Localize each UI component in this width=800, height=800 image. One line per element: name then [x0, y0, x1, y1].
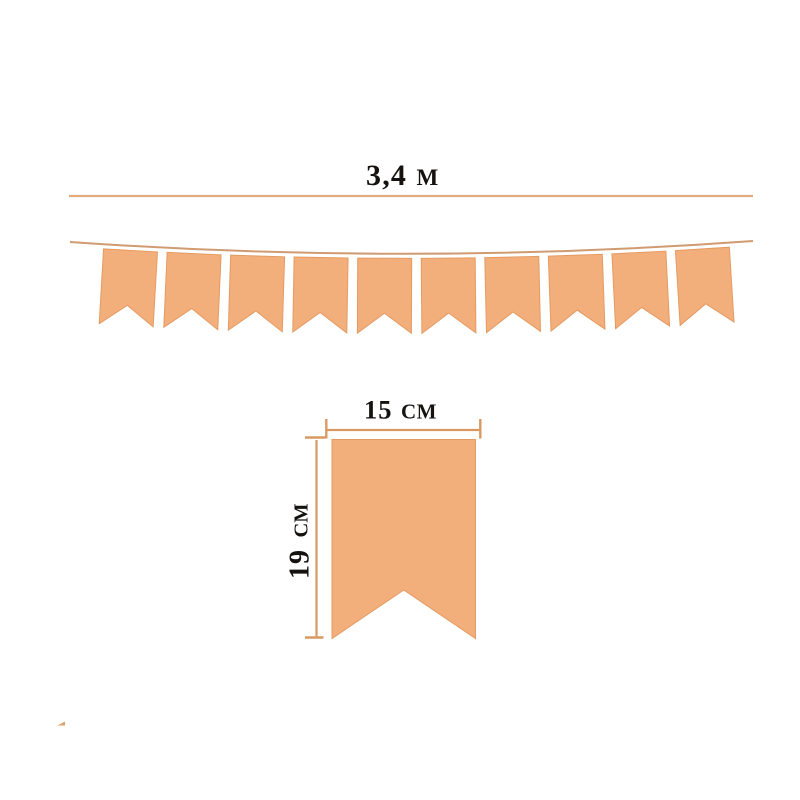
- svg-text:3,4: 3,4: [366, 159, 407, 192]
- svg-text:19: 19: [285, 549, 316, 579]
- svg-text:СМ: СМ: [291, 503, 313, 537]
- svg-text:15: 15: [364, 395, 393, 425]
- svg-text:СМ: СМ: [401, 400, 437, 424]
- svg-text:М: М: [417, 165, 439, 190]
